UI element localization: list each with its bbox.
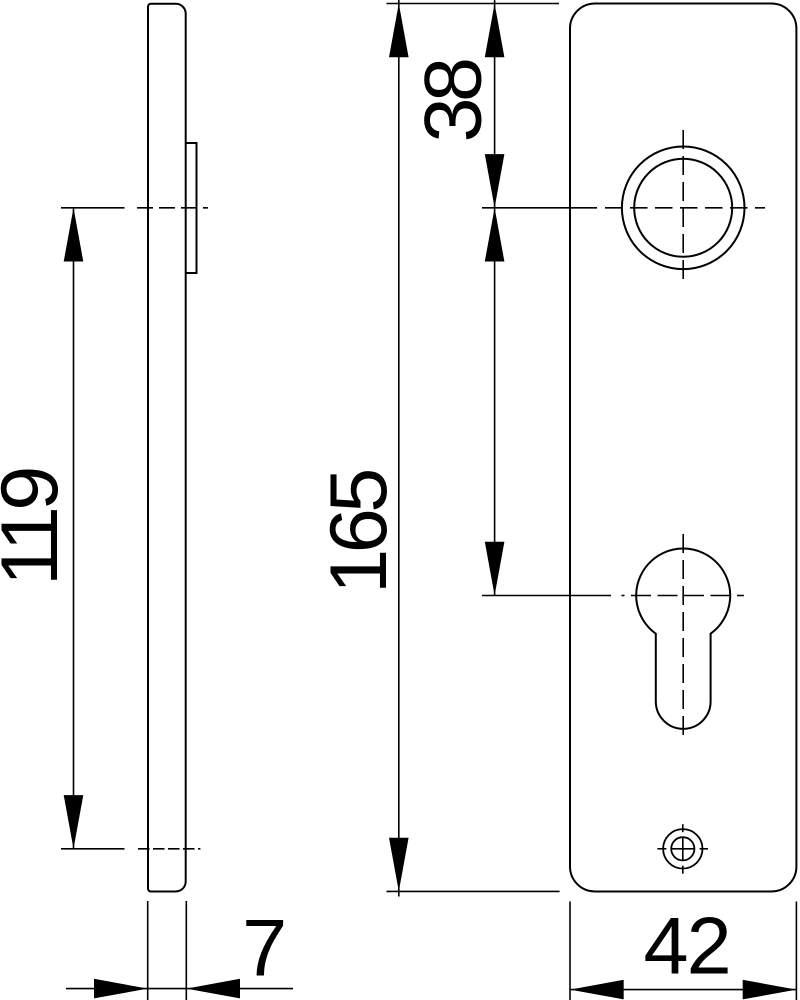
svg-text:165: 165 — [314, 471, 404, 594]
svg-text:42: 42 — [644, 902, 730, 992]
svg-text:38: 38 — [409, 60, 499, 143]
svg-text:119: 119 — [0, 469, 75, 586]
svg-text:7: 7 — [242, 903, 287, 993]
